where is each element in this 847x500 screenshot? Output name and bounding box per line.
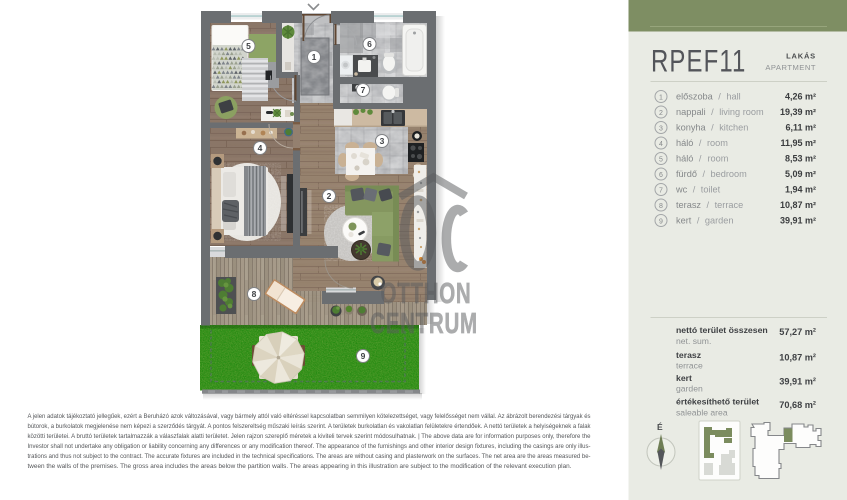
svg-text:előszoba/hall: előszoba/hall [676,92,741,102]
svg-text:terasz: terasz [676,350,702,360]
svg-text:net. sum.: net. sum. [676,336,711,346]
svg-text:É: É [657,422,663,432]
svg-text:5: 5 [659,156,663,163]
svg-text:70,68 m²: 70,68 m² [779,400,816,410]
svg-text:19,39 m²: 19,39 m² [780,107,816,117]
svg-text:nappali/living room: nappali/living room [676,107,764,117]
svg-text:2: 2 [327,191,332,201]
svg-text:kert: kert [676,373,692,383]
svg-text:1: 1 [659,94,663,101]
svg-text:CENTRUM: CENTRUM [370,309,478,340]
svg-text:OTTHON: OTTHON [381,279,472,310]
svg-text:8: 8 [659,203,663,210]
svg-text:9: 9 [659,218,663,225]
svg-text:1,94 m²: 1,94 m² [785,185,816,195]
svg-text:6,11 m²: 6,11 m² [785,123,816,133]
svg-text:8: 8 [252,289,257,299]
svg-text:3: 3 [659,125,663,132]
svg-text:kert/garden: kert/garden [676,216,734,226]
svg-text:A jelen adatok tájékoztató jel: A jelen adatok tájékoztató jellegűek, ez… [28,413,591,420]
svg-text:közötti területei. A bruttó te: közötti területei. A bruttó területek ta… [28,433,591,440]
svg-text:6: 6 [367,39,372,49]
svg-text:tween the walls of the premise: tween the walls of the premises. The gro… [28,463,572,470]
svg-text:3: 3 [380,136,385,146]
svg-text:trations and thus not subject: trations and thus not subject to the con… [28,453,591,460]
svg-text:10,87 m²: 10,87 m² [779,353,816,363]
svg-text:saleable area: saleable area [676,408,728,418]
svg-text:garden: garden [676,384,703,394]
svg-text:57,27 m²: 57,27 m² [779,327,816,337]
svg-text:RPEF11: RPEF11 [651,43,747,78]
svg-text:7: 7 [659,187,663,194]
svg-text:9: 9 [361,351,366,361]
svg-text:terrace: terrace [676,361,703,371]
svg-text:2: 2 [659,110,663,117]
svg-text:APARTMENT: APARTMENT [765,63,816,72]
svg-text:fürdő/bedroom: fürdő/bedroom [676,169,747,179]
svg-text:6: 6 [659,172,663,179]
svg-text:39,91 m²: 39,91 m² [780,216,816,226]
svg-text:39,91 m²: 39,91 m² [779,377,816,387]
svg-text:nettó terület összesen: nettó terület összesen [676,325,768,335]
svg-text:bútorok, a burkolatok megjelen: bútorok, a burkolatok megjelenése nem ké… [28,423,592,430]
svg-text:4: 4 [659,141,663,148]
svg-text:4,26 m²: 4,26 m² [785,92,816,102]
svg-text:5,09 m²: 5,09 m² [785,169,816,179]
svg-text:értékesíthető terület: értékesíthető terület [676,397,759,407]
svg-text:1: 1 [312,52,317,62]
svg-text:4: 4 [258,143,263,153]
svg-text:5: 5 [246,41,251,51]
svg-text:11,95 m²: 11,95 m² [780,138,816,148]
svg-text:10,87 m²: 10,87 m² [780,200,816,210]
svg-text:8,53 m²: 8,53 m² [785,154,816,164]
svg-text:konyha/kitchen: konyha/kitchen [676,123,748,133]
svg-text:LAKÁS: LAKÁS [786,52,816,61]
svg-text:Investor shall not undertake a: Investor shall not undertake any obligat… [28,443,591,450]
svg-text:7: 7 [361,85,366,95]
